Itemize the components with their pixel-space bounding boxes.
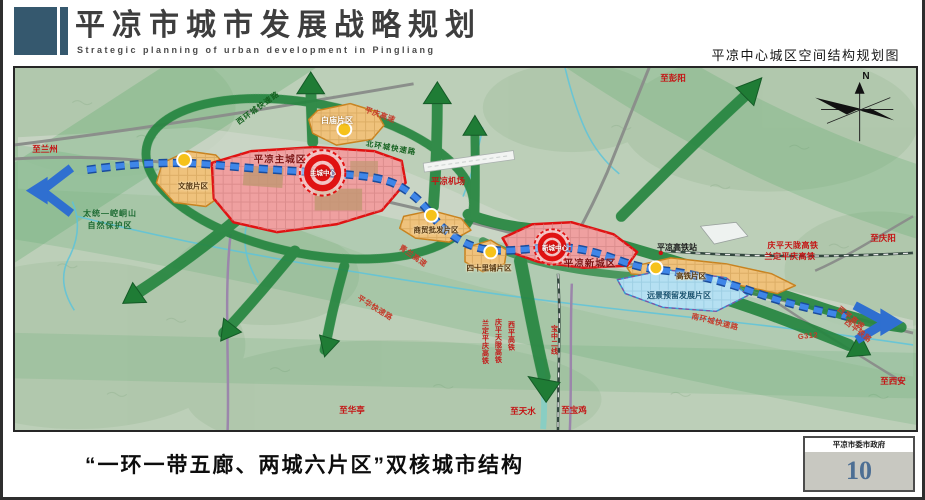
map-label: 至彭阳: [660, 74, 686, 83]
map-labels-layer: 至兰州至彭阳至庆阳至西安至华亭至天水至宝鸡平凉机场庆平天陇高铁兰定平庆高铁平庆高…: [15, 68, 916, 430]
header-block-logo: [14, 7, 57, 55]
map-label: 自然保护区: [88, 222, 133, 230]
map-label: 平凉机场: [431, 177, 465, 186]
map-label: 平庆高速: [364, 106, 397, 124]
page-title: 平凉市城市发展战略规划: [75, 10, 482, 42]
map-label: 主城中心: [310, 171, 336, 178]
map-label: 西平高铁: [508, 321, 515, 351]
map-label: 文旅片区: [178, 182, 208, 190]
map-label: 平凉新城区: [564, 259, 617, 269]
map-label: 南环城快速路: [691, 313, 739, 332]
map-label: N: [862, 72, 869, 82]
planning-map: 至兰州至彭阳至庆阳至西安至华亭至天水至宝鸡平凉机场庆平天陇高铁兰定平庆高铁平庆高…: [13, 66, 918, 432]
map-label: 青兰高速: [398, 244, 429, 268]
map-label: 至兰州: [32, 145, 58, 154]
map-label: 西环城快速路: [235, 90, 281, 126]
map-label: 平华快速路: [356, 294, 394, 322]
map-label: 至庆阳: [870, 234, 896, 243]
planning-poster-page: 平凉市城市发展战略规划 Strategic planning of urban …: [0, 0, 925, 500]
page-number: 10: [805, 452, 913, 490]
agency-name: 平凉市委市政府: [805, 439, 913, 452]
map-title: 平凉中心城区空间结构规划图: [711, 45, 900, 64]
map-label: 太统—崆峒山: [83, 210, 137, 218]
map-label: 平凉高铁站: [657, 244, 697, 252]
structure-caption: “一环一带五廊、两城六片区”双核城市结构: [85, 449, 524, 479]
map-label: 北环城快速路: [365, 140, 417, 156]
map-label: G312: [797, 331, 818, 341]
map-label: 至华亭: [339, 406, 365, 415]
agency-page-box: 平凉市委市政府 10: [803, 436, 915, 492]
map-label: 至西安: [880, 377, 906, 386]
map-label: 宝中二线: [551, 325, 558, 355]
map-label: 至天水: [510, 407, 536, 416]
header: 平凉市城市发展战略规划 Strategic planning of urban …: [3, 0, 922, 64]
map-label: 兰定平庆高铁: [482, 320, 489, 365]
map-label: 庆平天陇高铁: [768, 242, 819, 250]
map-label: 庆平天陇高铁: [495, 319, 502, 364]
map-label: 商贸批发片区: [414, 226, 459, 234]
map-label: 兰定平庆高铁: [765, 253, 816, 261]
header-accent-bar: [60, 7, 68, 55]
map-label: 高铁片区: [676, 272, 706, 280]
map-label: 远景预留发展片区: [647, 292, 711, 300]
map-label: 白庙片区: [321, 117, 353, 125]
map-label: 新城中心: [542, 246, 568, 253]
page-subtitle-en: Strategic planning of urban development …: [77, 45, 436, 55]
map-label: 至宝鸡: [561, 406, 587, 415]
map-label: 四十里铺片区: [467, 264, 512, 272]
map-label: 平凉主城区: [254, 155, 307, 165]
